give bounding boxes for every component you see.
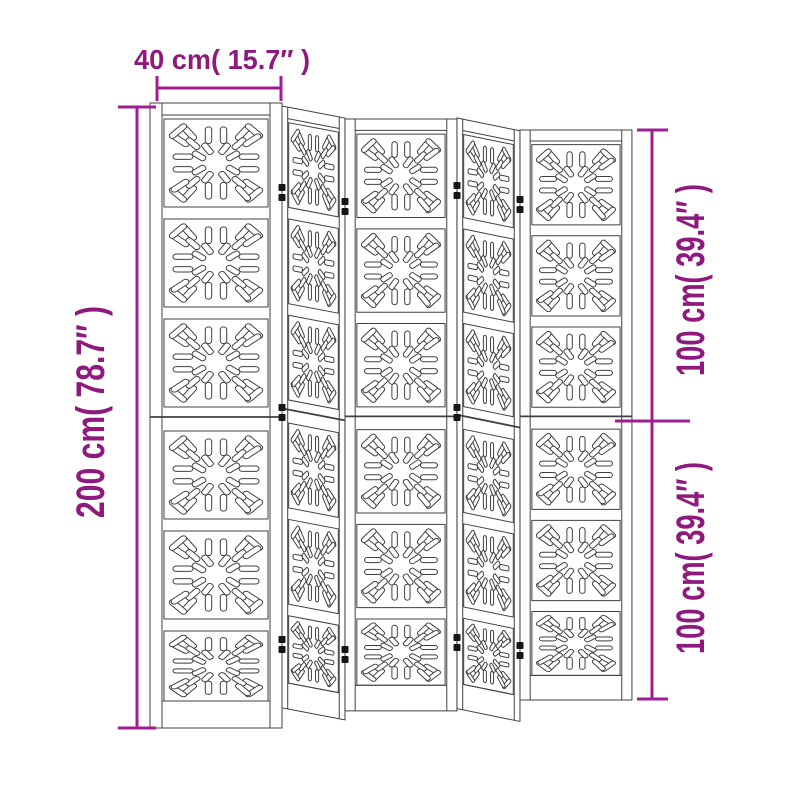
right-lower-height-label: 100 cm( 39.4″ ) [669, 462, 713, 654]
product-diagram-page: 40 cm( 15.7″ ) 200 cm( 78.7″ ) 100 cm( 3… [0, 0, 800, 800]
divider-panel-1 [150, 103, 282, 728]
divider-panel-2-angled [282, 106, 345, 720]
room-divider-dimension-diagram: 40 cm( 15.7″ ) 200 cm( 78.7″ ) 100 cm( 3… [0, 0, 800, 800]
divider-panel-4-angled [457, 118, 520, 721]
divider-panel-3 [345, 119, 457, 711]
left-height-label: 200 cm( 78.7″ ) [69, 306, 113, 518]
right-upper-height-label: 100 cm( 39.4″ ) [669, 184, 713, 376]
divider-artwork [150, 103, 632, 728]
divider-panel-5 [520, 130, 632, 700]
top-width-label: 40 cm( 15.7″ ) [134, 44, 310, 75]
